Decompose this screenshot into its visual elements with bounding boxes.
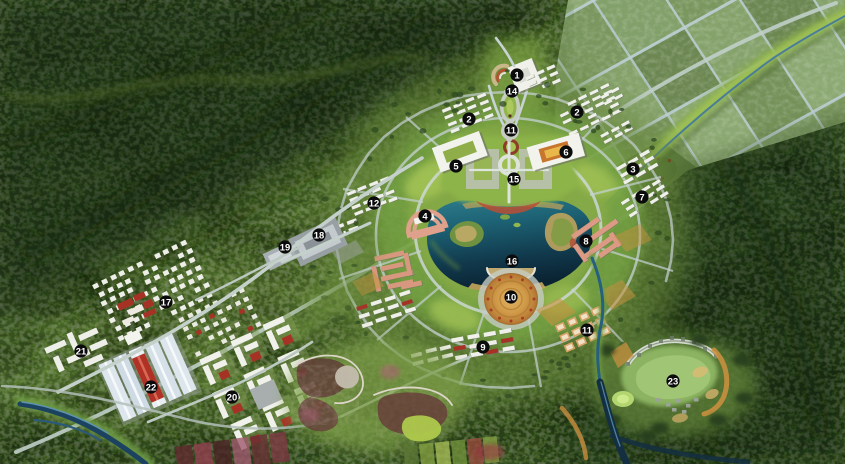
svg-text:11: 11 [582,324,592,335]
svg-text:18: 18 [314,229,324,240]
svg-text:15: 15 [509,173,519,184]
svg-text:9: 9 [480,341,485,352]
svg-text:2: 2 [574,106,579,117]
svg-text:4: 4 [422,210,428,221]
svg-text:20: 20 [227,391,237,402]
svg-text:11: 11 [506,124,516,135]
svg-text:5: 5 [453,160,458,171]
svg-text:23: 23 [668,375,678,386]
svg-text:17: 17 [161,296,171,307]
svg-text:10: 10 [506,291,516,302]
svg-text:19: 19 [280,241,290,252]
svg-text:3: 3 [630,163,635,174]
svg-text:7: 7 [639,191,644,202]
svg-text:21: 21 [76,345,86,356]
svg-text:22: 22 [146,381,156,392]
svg-text:1: 1 [514,69,519,80]
svg-text:8: 8 [583,235,588,246]
svg-text:2: 2 [466,113,471,124]
svg-text:16: 16 [507,255,517,266]
svg-text:14: 14 [507,85,518,96]
svg-text:6: 6 [563,146,568,157]
svg-text:12: 12 [369,197,379,208]
